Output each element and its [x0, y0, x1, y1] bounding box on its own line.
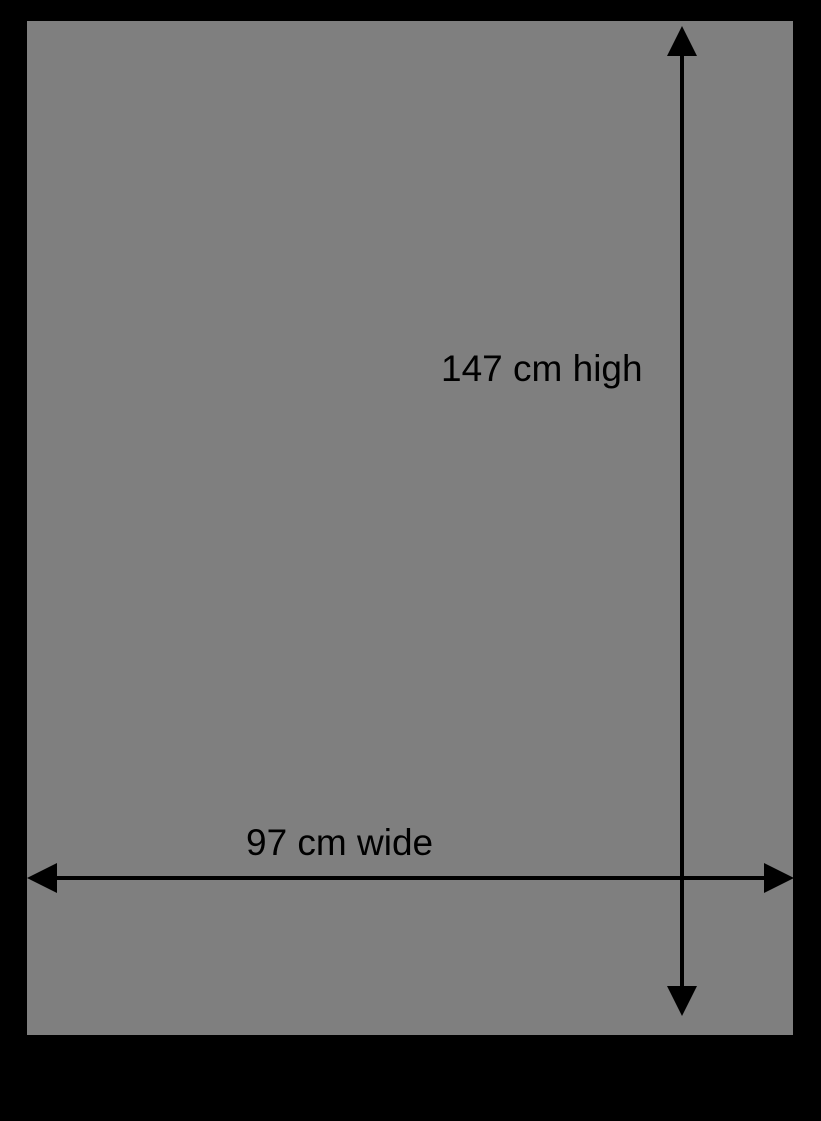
- diagram-stage: 147 cm high 97 cm wide: [0, 0, 821, 1121]
- dimension-arrows: [0, 0, 821, 1121]
- height-label: 147 cm high: [441, 349, 643, 390]
- arrow-left-icon: [27, 863, 57, 893]
- arrow-down-icon: [667, 986, 697, 1016]
- height-dimension-arrow: [667, 26, 697, 1016]
- width-dimension-arrow: [27, 863, 794, 893]
- arrow-up-icon: [667, 26, 697, 56]
- arrow-right-icon: [764, 863, 794, 893]
- width-label: 97 cm wide: [246, 823, 433, 864]
